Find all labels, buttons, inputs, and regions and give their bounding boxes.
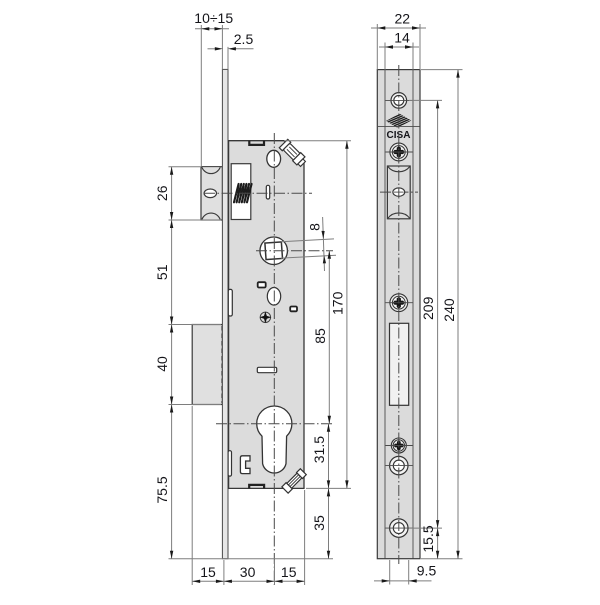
svg-text:170: 170 xyxy=(330,291,346,315)
svg-text:10÷15: 10÷15 xyxy=(194,10,233,26)
svg-text:9.5: 9.5 xyxy=(417,563,437,579)
svg-text:209: 209 xyxy=(420,296,436,320)
svg-text:15.5: 15.5 xyxy=(420,525,436,552)
svg-text:51: 51 xyxy=(154,264,170,280)
svg-text:31.5: 31.5 xyxy=(311,436,327,463)
svg-text:15: 15 xyxy=(281,564,297,580)
svg-text:240: 240 xyxy=(441,298,457,322)
svg-text:35: 35 xyxy=(311,515,327,531)
svg-text:8: 8 xyxy=(307,223,323,231)
svg-text:2.5: 2.5 xyxy=(234,31,254,47)
svg-text:85: 85 xyxy=(312,328,328,344)
svg-text:30: 30 xyxy=(240,564,256,580)
svg-text:40: 40 xyxy=(154,356,170,372)
svg-text:26: 26 xyxy=(154,185,170,201)
svg-text:14: 14 xyxy=(394,30,410,46)
svg-text:15: 15 xyxy=(200,564,216,580)
svg-text:75.5: 75.5 xyxy=(154,476,170,503)
svg-text:22: 22 xyxy=(395,11,411,27)
